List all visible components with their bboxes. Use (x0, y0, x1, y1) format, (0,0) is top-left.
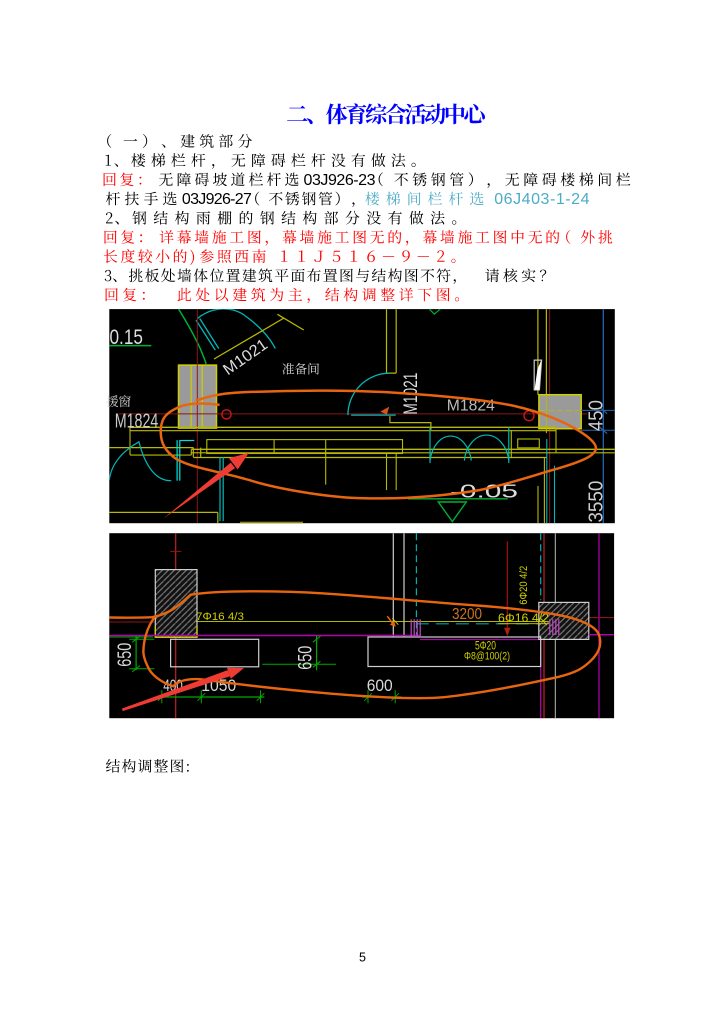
svg-text:450: 450 (585, 400, 607, 431)
svg-text:03J926-27: 03J926-27 (182, 191, 252, 208)
svg-text:Φ8@100(2): Φ8@100(2) (464, 651, 510, 663)
svg-text:5: 5 (359, 951, 366, 965)
svg-text:03J926-23: 03J926-23 (304, 172, 376, 189)
svg-text:650: 650 (115, 643, 136, 667)
svg-text:06J403-1-24: 06J403-1-24 (494, 191, 590, 208)
svg-text:3550: 3550 (585, 481, 607, 523)
svg-text:6Φ20 4/2: 6Φ20 4/2 (518, 566, 530, 605)
svg-text:600: 600 (367, 677, 393, 695)
svg-text:3200: 3200 (452, 606, 482, 623)
svg-text:650: 650 (295, 646, 316, 670)
svg-text:M1824: M1824 (115, 411, 159, 433)
